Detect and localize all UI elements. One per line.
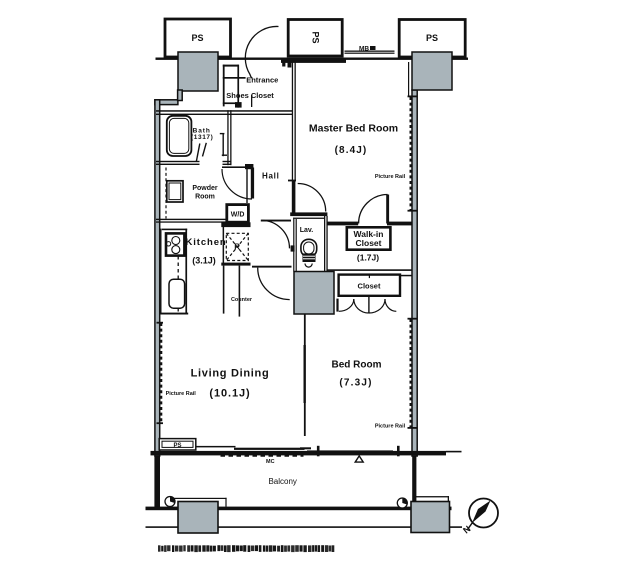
svg-text:R: R <box>234 243 240 252</box>
svg-text:Picture Rail: Picture Rail <box>375 423 406 429</box>
svg-text:W/D: W/D <box>231 211 245 218</box>
svg-text:PS: PS <box>191 33 203 43</box>
svg-text:Entrance: Entrance <box>246 76 278 85</box>
svg-text:(10.1J): (10.1J) <box>209 388 250 400</box>
svg-text:PS: PS <box>173 443 181 449</box>
svg-text:PS: PS <box>426 33 438 43</box>
svg-text:(7.3J): (7.3J) <box>339 378 372 389</box>
svg-text:PS: PS <box>311 31 321 43</box>
svg-text:Balcony: Balcony <box>268 477 296 486</box>
svg-text:(3.1J): (3.1J) <box>192 255 216 265</box>
svg-text:Room: Room <box>195 194 215 201</box>
svg-text:Closet: Closet <box>356 238 382 248</box>
svg-text:Shoes Closet: Shoes Closet <box>226 91 274 100</box>
svg-text:Picture Rail: Picture Rail <box>166 391 197 397</box>
svg-text:Bed Room: Bed Room <box>332 360 382 371</box>
svg-text:Master Bed Room: Master Bed Room <box>309 123 398 135</box>
svg-text:(1317): (1317) <box>191 134 213 141</box>
svg-text:Picture Rail: Picture Rail <box>375 174 406 180</box>
svg-text:Living Dining: Living Dining <box>191 368 270 380</box>
svg-text:Counter: Counter <box>231 297 253 303</box>
svg-text:Hall: Hall <box>262 172 279 181</box>
svg-text:Lav.: Lav. <box>300 227 314 234</box>
svg-text:(8.4J): (8.4J) <box>335 145 368 156</box>
svg-text:Powder: Powder <box>192 185 218 192</box>
svg-text:Closet: Closet <box>358 281 381 290</box>
svg-text:MB: MB <box>359 46 369 53</box>
svg-text:(1.7J): (1.7J) <box>357 253 379 263</box>
svg-text:MC: MC <box>266 459 275 465</box>
svg-text:Kitchen: Kitchen <box>186 237 227 248</box>
